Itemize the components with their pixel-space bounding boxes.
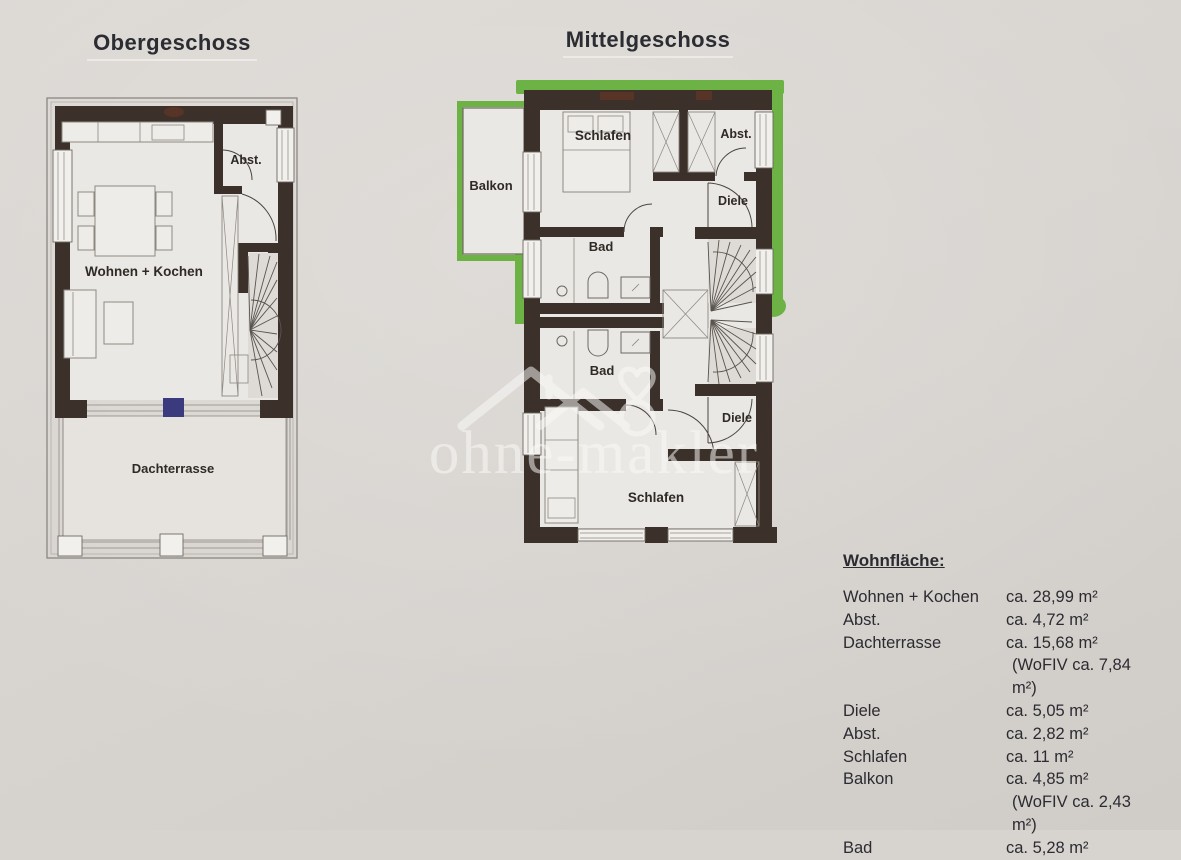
- label-abst-mg: Abst.: [720, 127, 751, 141]
- kitchen-counter-icon: [62, 122, 213, 142]
- area-table-heading: Wohnfläche:: [843, 551, 1143, 571]
- window-right-low: [755, 334, 773, 382]
- blue-marker: [163, 398, 184, 417]
- photo-smudge-3: [696, 91, 712, 100]
- photo-smudge-2: [600, 92, 634, 100]
- row-label: Bad: [843, 837, 1006, 860]
- label-schlafen-bottom: Schlafen: [628, 490, 684, 505]
- row-value: ca. 2,82 m²: [1006, 723, 1143, 746]
- row-label: Abst.: [843, 723, 1006, 746]
- table-row: Balkon ca. 4,85 m²: [843, 768, 1143, 791]
- bed-icon-top: [563, 112, 630, 192]
- table-row: Schlafen ca. 11 m²: [843, 746, 1143, 769]
- watermark-text: ohne-makler: [429, 420, 759, 487]
- area-table: Wohnfläche: Wohnen + Kochen ca. 28,99 m²…: [843, 551, 1143, 860]
- row-label: Schlafen: [843, 746, 1006, 769]
- table-row: Diele ca. 5,05 m²: [843, 700, 1143, 723]
- label-bad-bottom: Bad: [590, 363, 615, 378]
- window-right: [277, 128, 294, 182]
- staircase-icon-bottom: [708, 320, 756, 384]
- table-row: Wohnen + Kochen ca. 28,99 m²: [843, 586, 1143, 609]
- row-value: ca. 5,05 m²: [1006, 700, 1143, 723]
- photo-smudge: [164, 107, 184, 117]
- row-label-spacer: [843, 654, 1006, 700]
- row-note: (WoFIV ca. 7,84 m²): [1006, 654, 1143, 700]
- label-wohnen-kochen: Wohnen + Kochen: [85, 264, 203, 279]
- staircase-icon-top: [708, 239, 756, 311]
- obergeschoss-plan: Abst. Wohnen + Kochen Dachterrasse: [47, 98, 297, 558]
- table-row: Dachterrasse ca. 15,68 m²: [843, 632, 1143, 655]
- table-note-row: (WoFIV ca. 7,84 m²): [843, 654, 1143, 700]
- window-right-top: [755, 112, 773, 168]
- row-value: ca. 4,85 m²: [1006, 768, 1143, 791]
- window-left-mid: [523, 240, 541, 298]
- window-left: [53, 150, 72, 242]
- table-row: Abst. ca. 2,82 m²: [843, 723, 1143, 746]
- label-balkon: Balkon: [469, 178, 512, 193]
- row-value: ca. 28,99 m²: [1006, 586, 1143, 609]
- window-bottom-left: [578, 529, 645, 541]
- label-bad-top: Bad: [589, 239, 614, 254]
- row-value: ca. 11 m²: [1006, 746, 1143, 769]
- row-label: Abst.: [843, 609, 1006, 632]
- label-diele-top: Diele: [718, 194, 748, 208]
- label-dachterrasse: Dachterrasse: [132, 461, 214, 476]
- table-row: Abst. ca. 4,72 m²: [843, 609, 1143, 632]
- balcony-door: [523, 152, 541, 212]
- row-value: ca. 4,72 m²: [1006, 609, 1143, 632]
- roof-terrace-area: [63, 416, 287, 540]
- corner-recess: [266, 110, 281, 125]
- label-abst-og: Abst.: [230, 153, 261, 167]
- label-schlafen-top: Schlafen: [575, 128, 631, 143]
- row-value: ca. 15,68 m²: [1006, 632, 1143, 655]
- row-label: Wohnen + Kochen: [843, 586, 1006, 609]
- table-row: Bad ca. 5,28 m²: [843, 837, 1143, 860]
- row-label: Dachterrasse: [843, 632, 1006, 655]
- window-bottom-right: [668, 529, 733, 541]
- row-value: ca. 5,28 m²: [1006, 837, 1143, 860]
- window-right-mid: [755, 249, 773, 294]
- row-label: Diele: [843, 700, 1006, 723]
- row-label: Balkon: [843, 768, 1006, 791]
